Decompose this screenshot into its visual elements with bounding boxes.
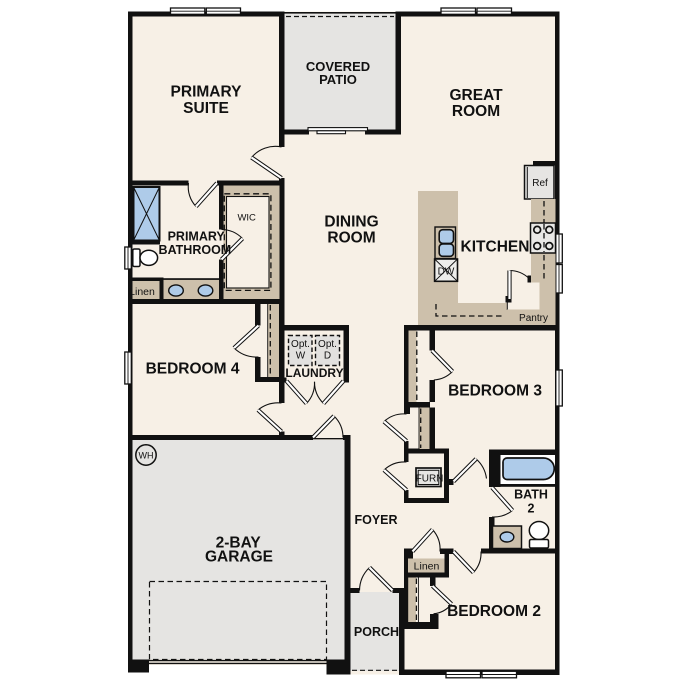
svg-text:BEDROOM 3: BEDROOM 3 [448,383,542,400]
svg-text:BATHROOM: BATHROOM [159,243,232,257]
svg-text:ROOM: ROOM [452,103,500,120]
svg-text:2: 2 [528,502,535,516]
svg-text:LAUNDRY: LAUNDRY [285,366,343,380]
svg-text:KITCHEN: KITCHEN [461,239,530,256]
svg-text:BEDROOM 2: BEDROOM 2 [447,603,541,620]
svg-text:BEDROOM 4: BEDROOM 4 [146,361,240,378]
svg-text:BATH: BATH [514,488,548,502]
svg-text:WH: WH [139,450,154,460]
svg-text:FOYER: FOYER [354,513,397,527]
svg-text:Linen: Linen [414,561,440,573]
svg-text:FURN: FURN [416,474,444,485]
svg-text:GARAGE: GARAGE [205,549,273,566]
svg-text:Opt.: Opt. [291,339,310,350]
svg-text:Linen: Linen [129,286,155,298]
svg-text:PORCH: PORCH [354,625,399,639]
svg-text:Ref: Ref [532,178,548,189]
svg-text:PRIMARY: PRIMARY [171,84,243,101]
svg-text:Pantry: Pantry [519,313,548,324]
svg-text:PRIMARY: PRIMARY [168,230,226,244]
svg-text:DW: DW [438,267,455,278]
svg-text:WIC: WIC [237,213,256,224]
svg-text:PATIO: PATIO [319,72,357,87]
svg-text:D: D [324,351,331,362]
svg-text:Opt.: Opt. [318,339,337,350]
svg-text:SUITE: SUITE [183,100,229,117]
svg-text:W: W [296,351,306,362]
svg-text:DINING: DINING [324,213,378,230]
svg-text:ROOM: ROOM [327,230,375,247]
svg-text:GREAT: GREAT [449,87,503,104]
